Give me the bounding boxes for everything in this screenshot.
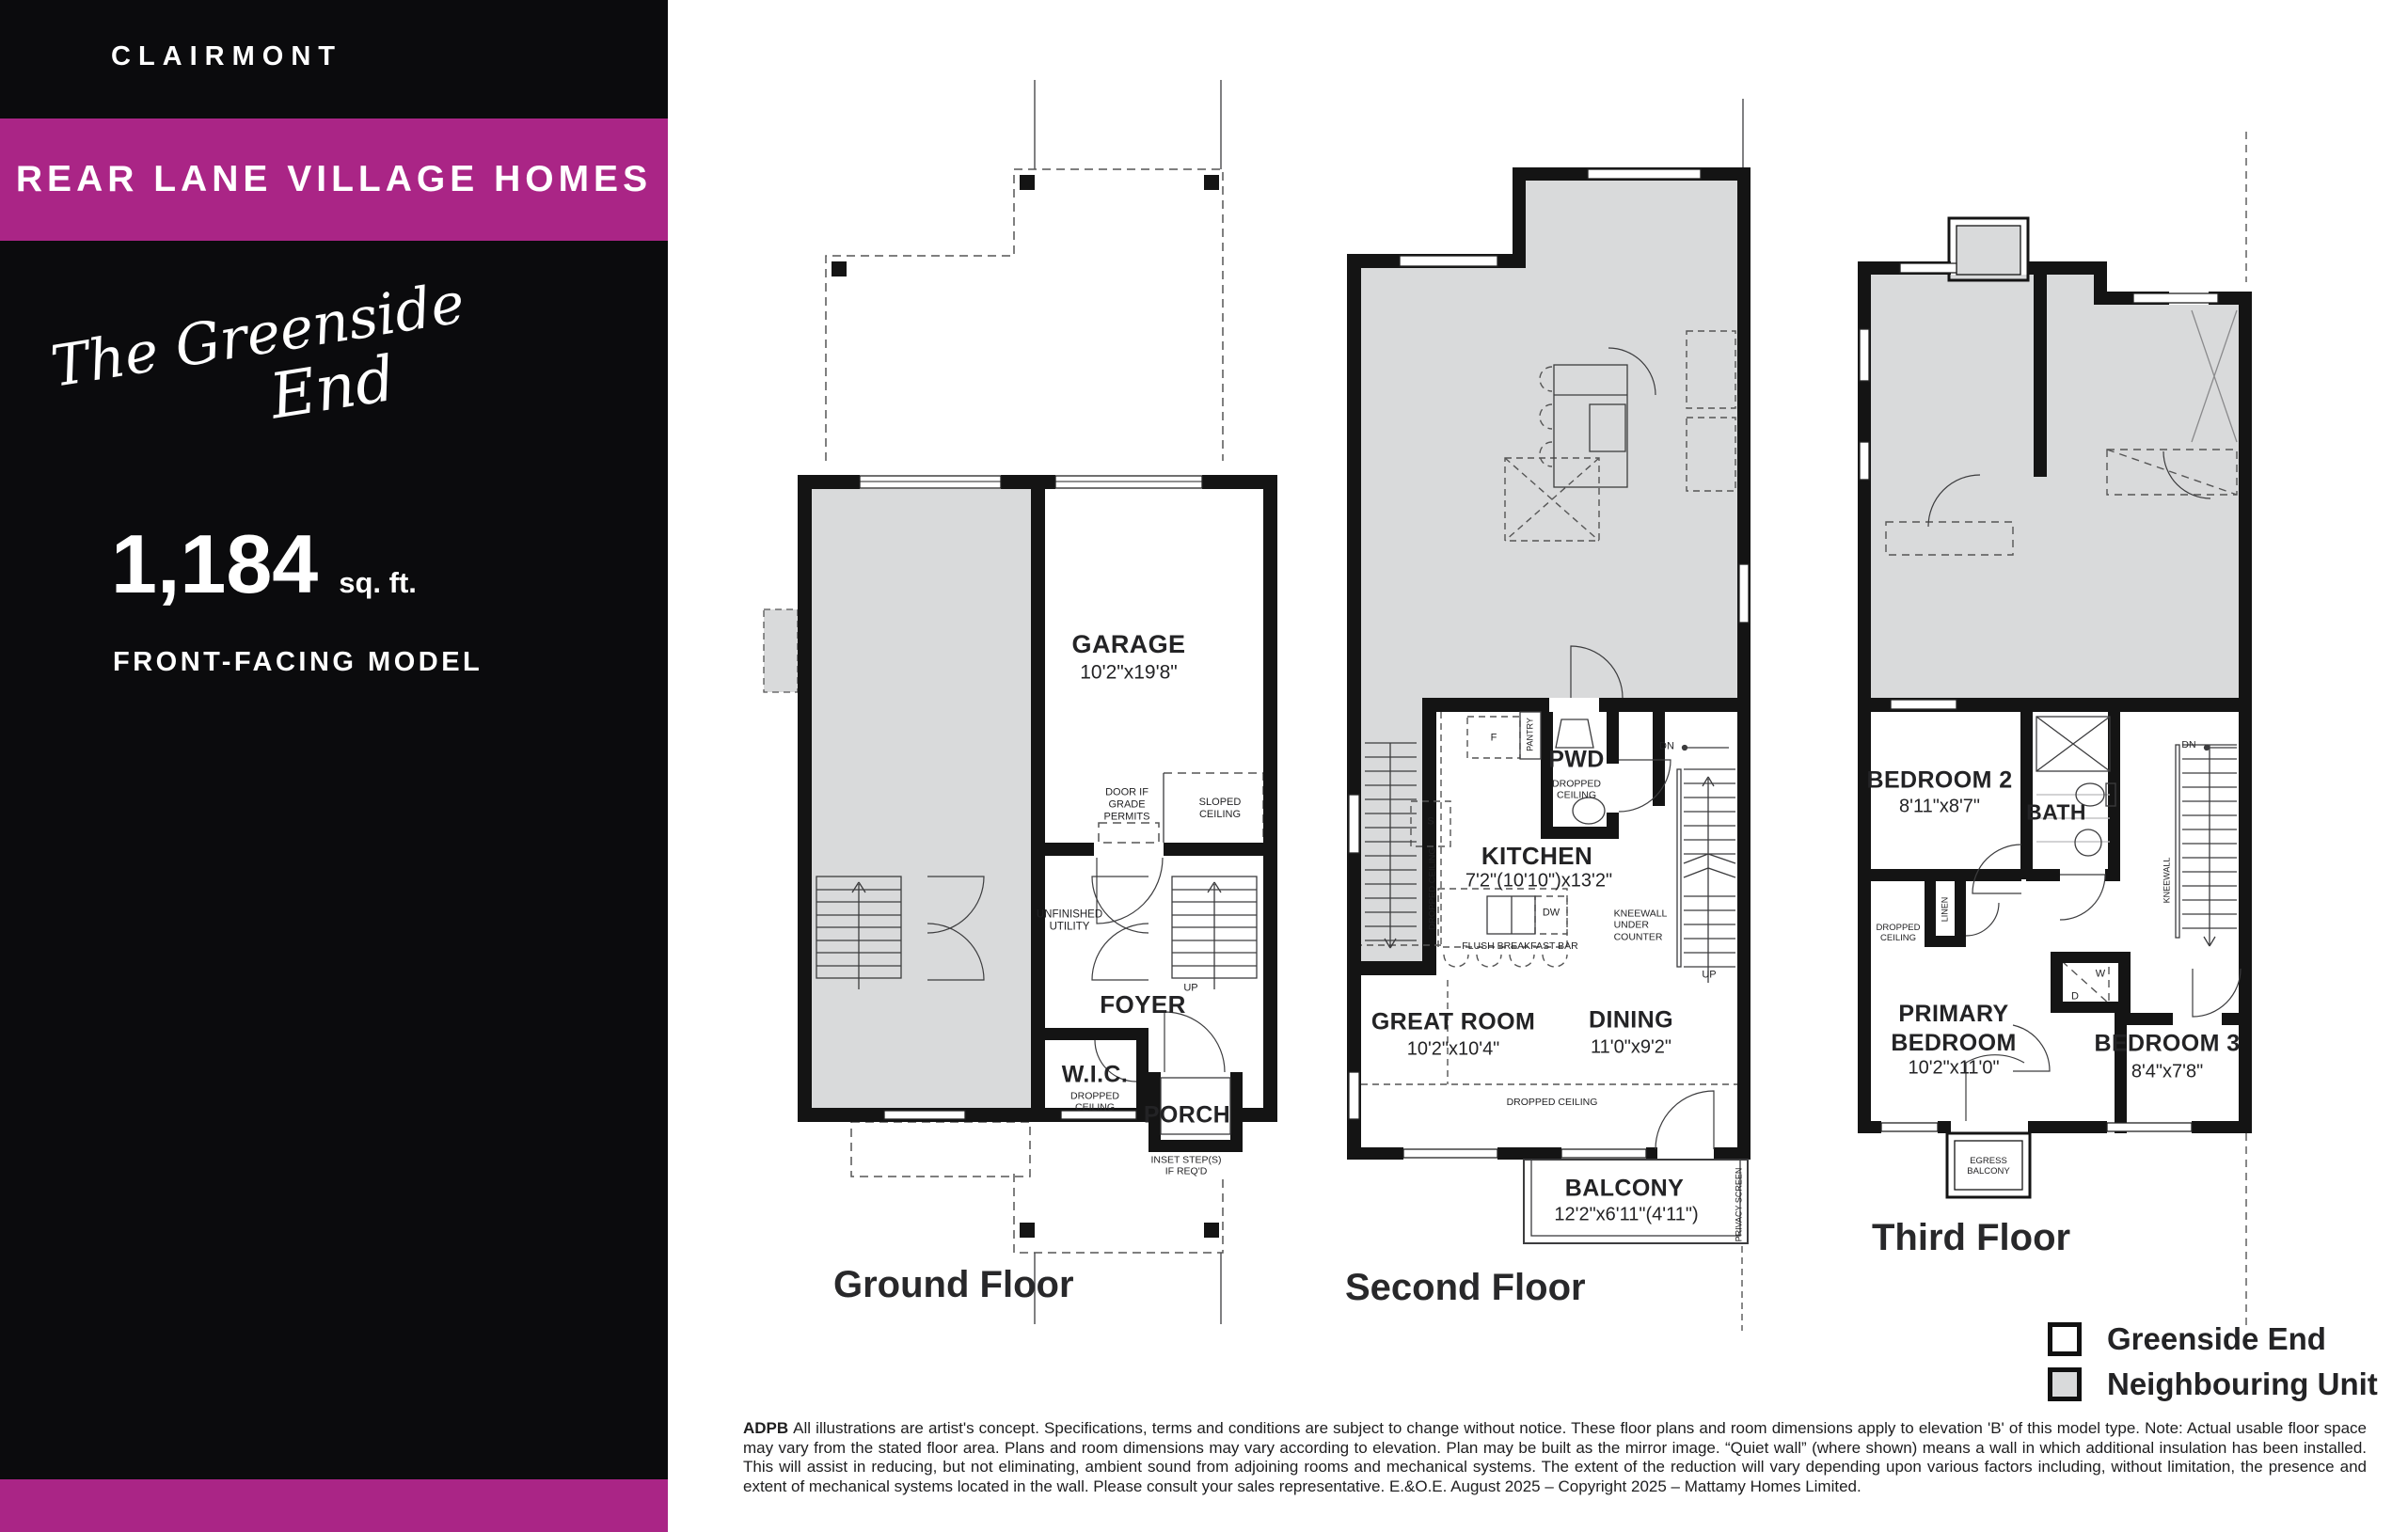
label-inset-steps: INSET STEP(S) IF REQ'D <box>1150 1155 1221 1178</box>
label-privacy-screen: PRIVACY SCREEN <box>1735 1168 1745 1242</box>
disclaimer-prefix: ADPB <box>743 1419 788 1437</box>
label-dropped-third: DROPPED CEILING <box>1877 923 1921 943</box>
label-dw: DW <box>1543 908 1560 920</box>
legend-label-neighbouring-unit: Neighbouring Unit <box>2107 1366 2378 1402</box>
label-kneewall-counter: KNEEWALL UNDER COUNTER <box>1614 908 1668 943</box>
label-garage-dims: 10'2"x19'8" <box>1080 662 1178 686</box>
label-sink: S <box>1427 816 1434 829</box>
label-bedroom2: BEDROOM 2 <box>1866 766 2012 794</box>
label-kitchen-dims: 7'2"(10'10")x13'2" <box>1465 870 1612 892</box>
disclaimer-body: All illustrations are artist's concept. … <box>743 1419 2367 1495</box>
label-up-second: UP <box>1702 970 1716 982</box>
label-dn-third: DN <box>2181 739 2195 750</box>
floor-plan-drawings <box>0 0 2408 1532</box>
label-flush-bar: FLUSH BREAKFAST BAR <box>1462 940 1578 952</box>
label-garage: GARAGE <box>1072 630 1186 660</box>
label-wic-note: DROPPED CEILING <box>1070 1091 1119 1114</box>
label-porch: PORCH <box>1144 1101 1230 1129</box>
label-pwd: PWD <box>1548 746 1605 773</box>
disclaimer: ADPBAll illustrations are artist's conce… <box>743 1419 2367 1496</box>
label-dropped-ceiling-vert: DROPPED CEILING <box>1427 847 1437 930</box>
legend-swatch-greenside-end <box>2048 1322 2082 1356</box>
label-dining: DINING <box>1589 1006 1673 1034</box>
caption-second-floor: Second Floor <box>1345 1267 1586 1309</box>
label-foyer: FOYER <box>1100 990 1186 1019</box>
label-balcony-dims: 12'2"x6'11"(4'11") <box>1554 1204 1698 1225</box>
caption-third-floor: Third Floor <box>1872 1217 2070 1259</box>
brochure-page: CLAIRMONT REAR LANE VILLAGE HOMES The Gr… <box>0 0 2408 1532</box>
label-kneewall: KNEEWALL <box>2162 858 2173 904</box>
legend-label-greenside-end: Greenside End <box>2107 1321 2326 1357</box>
label-dropped-ceiling: DROPPED CEILING <box>1507 1097 1598 1108</box>
label-dn-second: DN <box>1659 741 1674 753</box>
label-up: UP <box>1183 983 1197 995</box>
label-bedroom3-dims: 8'4"x7'8" <box>2131 1061 2203 1082</box>
caption-ground-floor: Ground Floor <box>833 1264 1074 1306</box>
label-dining-dims: 11'0"x9'2" <box>1591 1036 1671 1058</box>
label-sloped-ceiling: SLOPED CEILING <box>1199 797 1242 821</box>
label-unfinished-utility: UNFINISHED UTILITY <box>1037 909 1102 935</box>
label-fridge: F <box>1491 733 1497 745</box>
label-balcony: BALCONY <box>1565 1175 1684 1202</box>
label-bedroom3: BEDROOM 3 <box>2094 1030 2240 1057</box>
label-great-room: GREAT ROOM <box>1371 1008 1535 1035</box>
label-dryer: D <box>2071 991 2079 1003</box>
label-pwd-note: DROPPED CEILING <box>1552 779 1601 802</box>
label-primary-dims: 10'2"x11'0" <box>1908 1057 1999 1079</box>
label-pantry: PANTRY <box>1526 718 1536 751</box>
label-door-note: DOOR IF GRADE PERMITS <box>1104 787 1150 824</box>
label-great-room-dims: 10'2"x10'4" <box>1407 1038 1500 1060</box>
label-kitchen: KITCHEN <box>1481 842 1592 870</box>
second-floor-geometry <box>1347 99 1751 1331</box>
label-washer: W <box>2096 969 2105 981</box>
third-floor-geometry <box>1858 132 2252 1328</box>
label-bath: BATH <box>2026 800 2086 826</box>
label-egress-balcony: EGRESS BALCONY <box>1967 1156 2009 1177</box>
legend-swatch-neighbouring-unit <box>2048 1367 2082 1401</box>
label-wic: W.I.C. <box>1062 1061 1128 1088</box>
ground-floor-geometry <box>764 80 1277 1324</box>
label-primary-bedroom: PRIMARY BEDROOM <box>1891 1000 2016 1059</box>
label-linen: LINEN <box>1941 897 1951 923</box>
label-bedroom2-dims: 8'11"x8'7" <box>1899 796 1980 817</box>
